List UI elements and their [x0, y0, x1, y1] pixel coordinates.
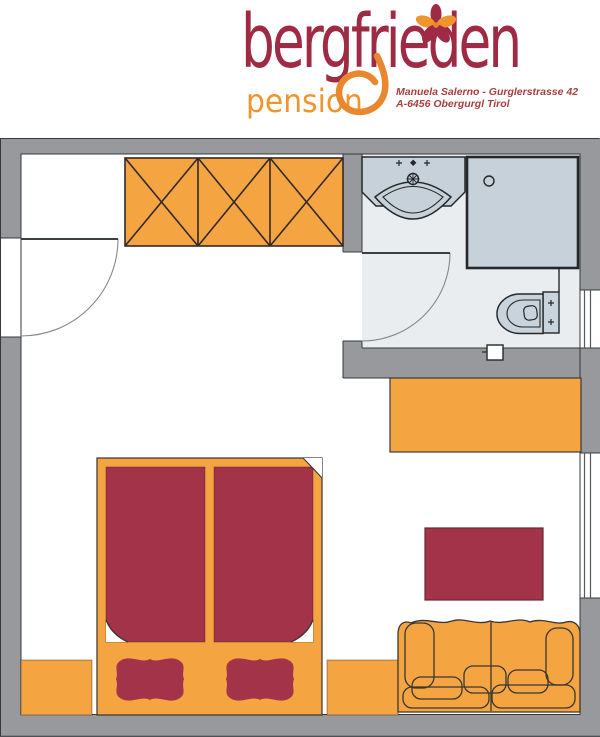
mattress-right [214, 467, 313, 642]
window-bathroom [581, 290, 600, 348]
desk [390, 378, 581, 452]
bench-left [21, 660, 92, 715]
bench-right [327, 660, 398, 715]
double-bed [97, 458, 322, 715]
toilet [497, 292, 559, 334]
mattress-left [106, 467, 205, 642]
shower [467, 157, 578, 268]
window-bedroom [581, 453, 600, 598]
wardrobe [125, 158, 343, 246]
foot-cushion-right [226, 658, 294, 700]
coffee-table [425, 528, 543, 600]
entry-door [21, 239, 118, 336]
sofa [398, 620, 580, 712]
toilet-cistern [543, 292, 559, 333]
floorplan-drawing [0, 0, 600, 737]
foot-cushion-left [116, 658, 184, 700]
floorplan-page: bergfrieden pension Manuela Salerno - Gu… [0, 0, 600, 737]
